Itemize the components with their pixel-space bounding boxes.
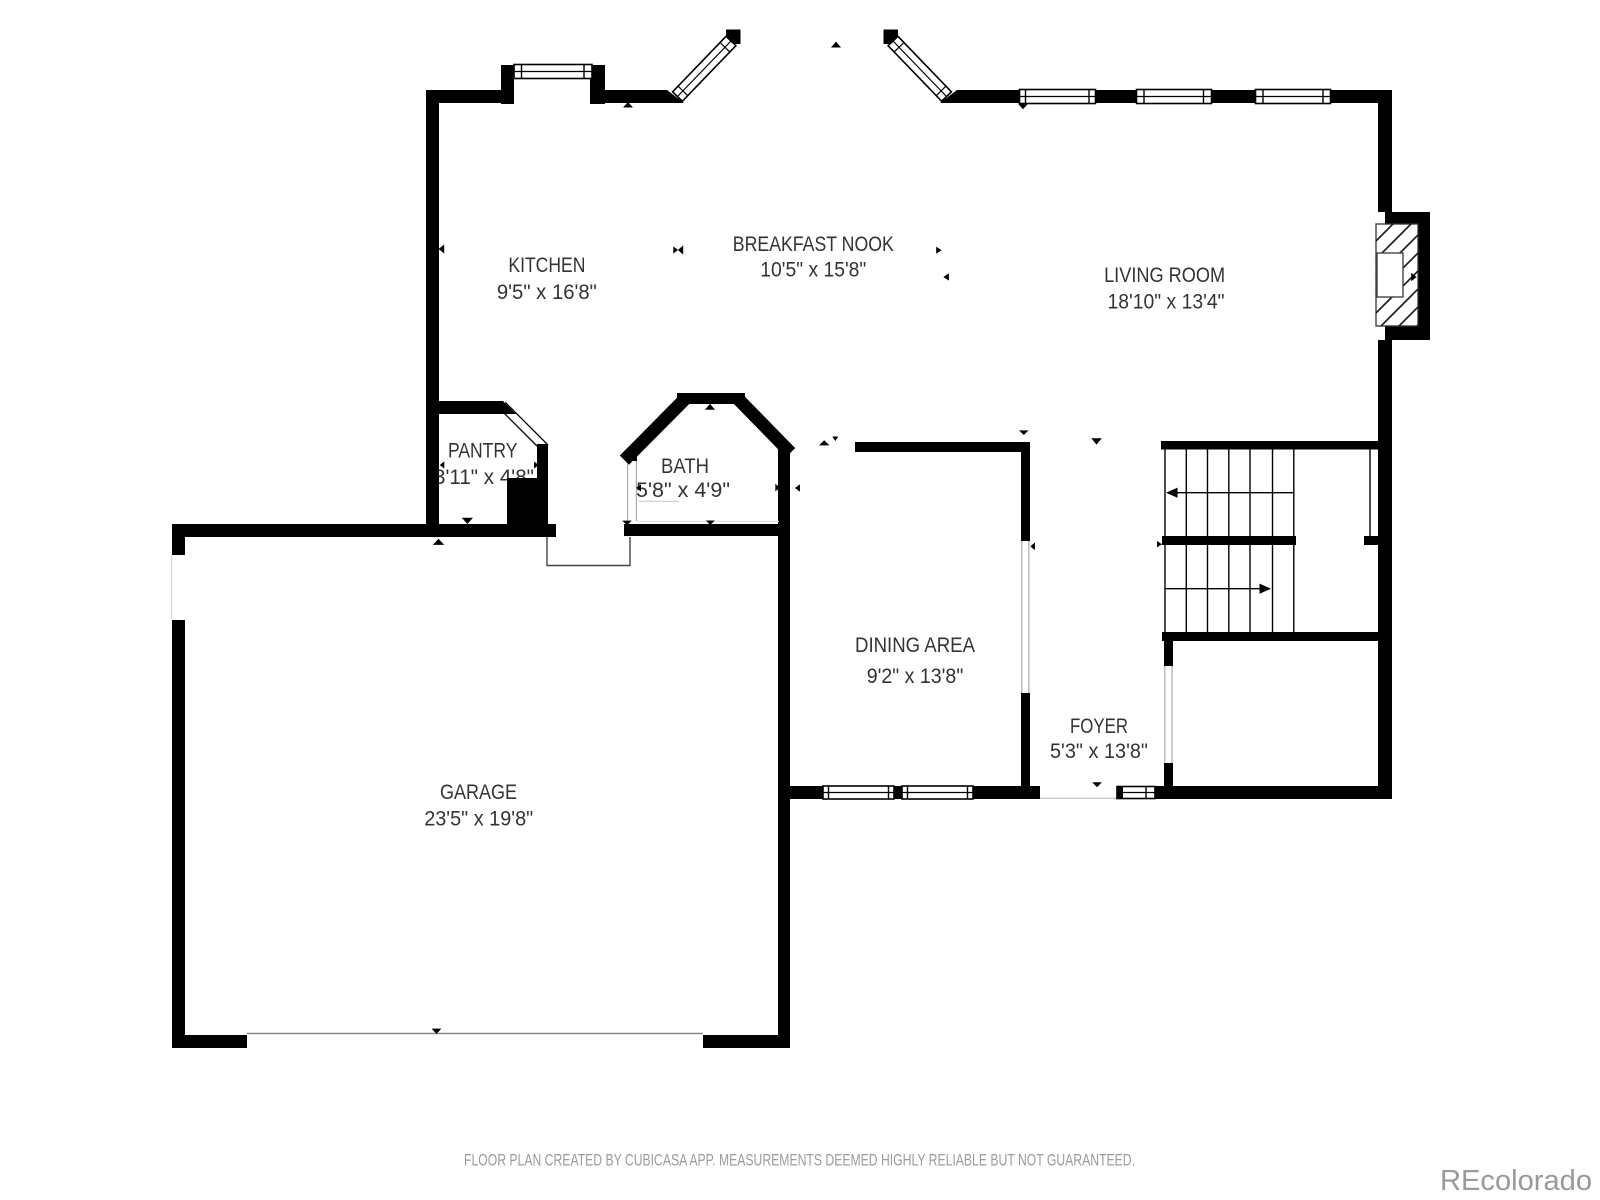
svg-text:BREAKFAST NOOK: BREAKFAST NOOK [733,232,895,256]
svg-text:9'5" x 16'8": 9'5" x 16'8" [497,280,597,304]
svg-text:23'5" x 19'8": 23'5" x 19'8" [424,807,533,831]
svg-text:5'3" x 13'8": 5'3" x 13'8" [1050,739,1148,763]
svg-text:FOYER: FOYER [1070,714,1128,738]
svg-text:DINING AREA: DINING AREA [855,633,976,657]
svg-text:PANTRY: PANTRY [448,439,518,463]
svg-text:10'5" x 15'8": 10'5" x 15'8" [760,258,866,282]
svg-text:18'10" x 13'4": 18'10" x 13'4" [1108,289,1225,313]
svg-text:LIVING ROOM: LIVING ROOM [1104,263,1225,287]
svg-text:9'2" x 13'8": 9'2" x 13'8" [867,664,964,688]
svg-text:5'8" x 4'9": 5'8" x 4'9" [636,478,730,502]
svg-text:BATH: BATH [661,454,709,478]
svg-text:KITCHEN: KITCHEN [508,253,585,277]
svg-text:GARAGE: GARAGE [440,780,517,804]
svg-text:FLOOR PLAN CREATED BY CUBICASA: FLOOR PLAN CREATED BY CUBICASA APP. MEAS… [464,1152,1135,1170]
svg-text:REcolorado: REcolorado [1440,1165,1592,1197]
